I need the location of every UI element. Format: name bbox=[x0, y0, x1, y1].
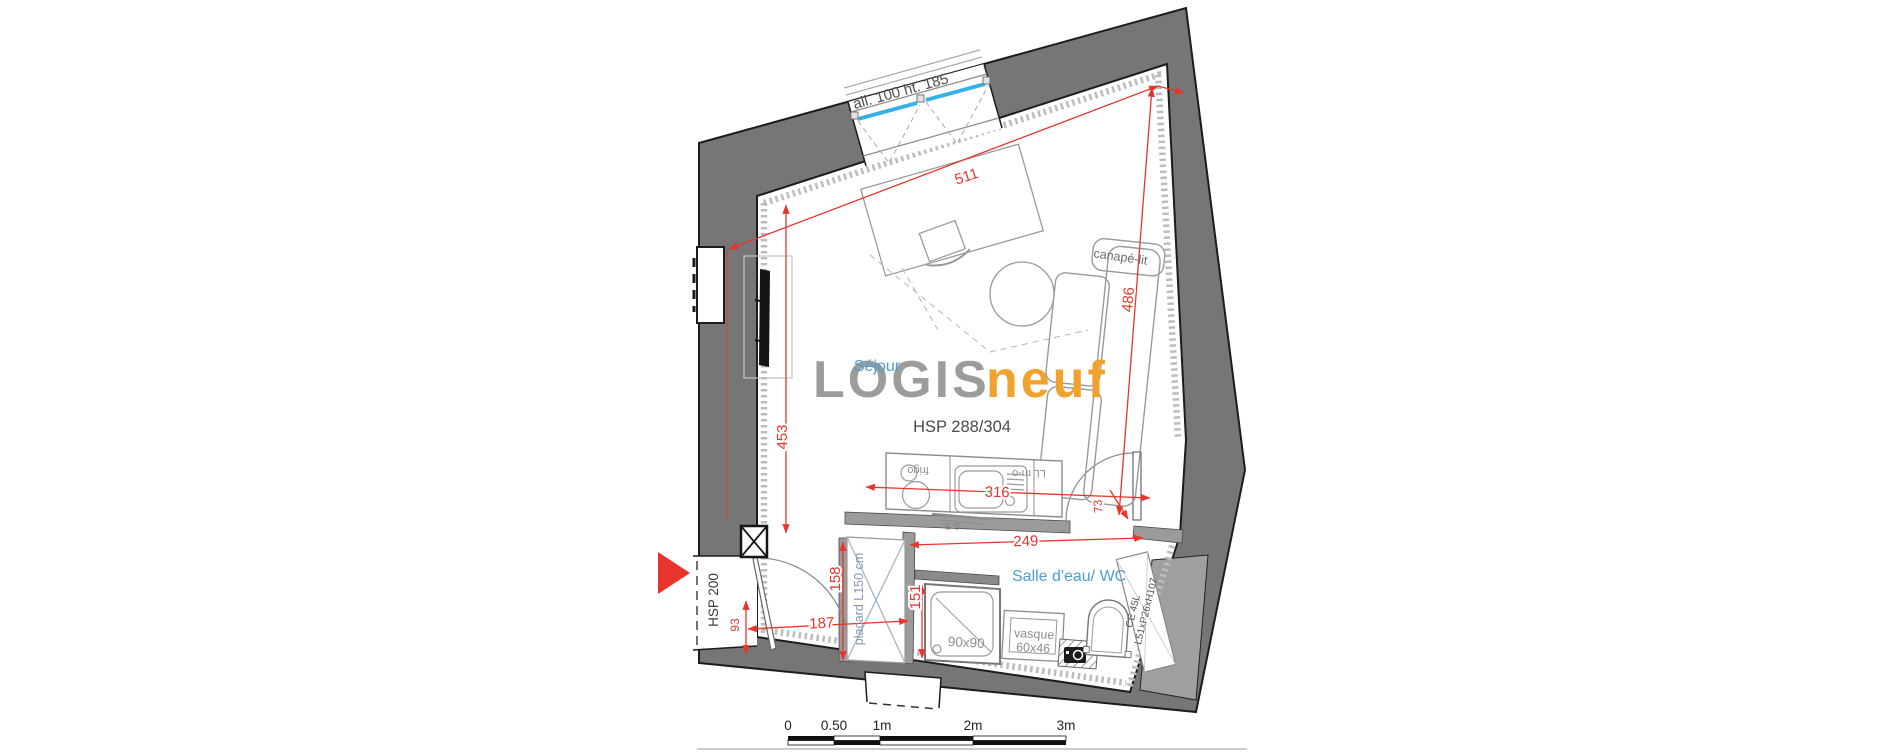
dim-453: 453 bbox=[774, 424, 791, 449]
layout-option-dashes bbox=[870, 255, 1088, 352]
basin-label-2: 60x46 bbox=[1016, 640, 1051, 656]
chair bbox=[916, 219, 972, 270]
fridge-label: frigo bbox=[907, 464, 928, 476]
dim-187: 187 bbox=[809, 614, 835, 632]
ceiling-height-main-label: HSP 288/304 bbox=[913, 418, 1011, 436]
dim-93: 93 bbox=[728, 618, 742, 632]
room-label-bathroom: Salle d'eau/ WC bbox=[1012, 568, 1126, 585]
scale-tick-05: 0.50 bbox=[821, 718, 847, 733]
dim-486: 486 bbox=[1119, 286, 1138, 312]
dim-249: 249 bbox=[1013, 533, 1039, 551]
kitchen-counter bbox=[886, 453, 1062, 517]
floor-plan-page: LOGIS neuf all. 100 ht. 185 Séjour HSP 2… bbox=[0, 0, 1900, 754]
sofa-bed-label: canapé-lit bbox=[1093, 246, 1149, 267]
logo-logis: LOGIS bbox=[813, 351, 990, 409]
dim-316: 316 bbox=[984, 484, 1010, 502]
dim-73: 73 bbox=[1090, 499, 1105, 514]
scale-bar: 0 0.50 1m 2m 3m bbox=[697, 718, 1247, 749]
toilet bbox=[1083, 598, 1135, 657]
scale-tick-2m: 2m bbox=[964, 718, 983, 733]
left-wall-niche bbox=[694, 247, 724, 323]
kitchen-wall-stub bbox=[1133, 526, 1183, 543]
closet-label: placard L150 cm bbox=[852, 553, 866, 645]
round-table bbox=[990, 262, 1054, 326]
shower-size-label: 90x90 bbox=[947, 634, 985, 651]
towel-dryer-label: S.S. bbox=[942, 520, 960, 531]
dim-511: 511 bbox=[953, 165, 981, 189]
bottom-wall-niche bbox=[865, 672, 941, 709]
dim-151: 151 bbox=[907, 584, 924, 609]
entrance-arrow-icon bbox=[658, 552, 690, 594]
conduit-box bbox=[741, 526, 767, 557]
logo-neuf: neuf bbox=[986, 351, 1108, 409]
ceiling-height-entry-label: HSP 200 bbox=[706, 573, 721, 627]
shower bbox=[925, 584, 1000, 664]
shower-north-wall bbox=[915, 570, 999, 585]
floor-plan-drawing: LOGIS neuf all. 100 ht. 185 Séjour HSP 2… bbox=[0, 0, 1900, 754]
room-label-sejour: Séjour bbox=[854, 358, 901, 375]
scale-tick-1m: 1m bbox=[873, 718, 892, 733]
scale-tick-3m: 3m bbox=[1057, 718, 1076, 733]
entrance-opening bbox=[693, 556, 757, 650]
washer-microwave-label: LL m-o bbox=[1012, 467, 1046, 479]
dim-158: 158 bbox=[827, 566, 844, 591]
scale-tick-0: 0 bbox=[784, 718, 792, 733]
